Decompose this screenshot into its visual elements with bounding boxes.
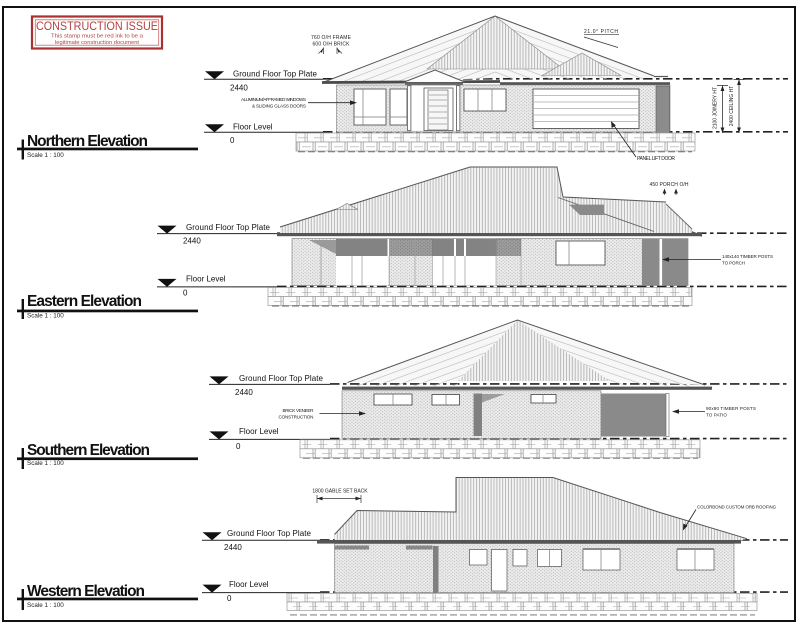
svg-text:CONSTRUCTION: CONSTRUCTION (279, 415, 314, 420)
svg-text:Scale 1 : 100: Scale 1 : 100 (27, 460, 64, 467)
svg-text:Scale 1 : 100: Scale 1 : 100 (27, 313, 64, 320)
svg-text:21.0° PITCH: 21.0° PITCH (584, 29, 618, 35)
svg-text:2440: 2440 (235, 388, 253, 397)
svg-text:Floor Level: Floor Level (229, 580, 269, 589)
svg-text:Floor Level: Floor Level (233, 123, 273, 132)
svg-text:140x140 TIMBER POSTS: 140x140 TIMBER POSTS (722, 254, 773, 259)
svg-text:legitimate construction docume: legitimate construction document (55, 40, 139, 46)
svg-text:Scale 1 : 100: Scale 1 : 100 (27, 602, 64, 609)
svg-text:0: 0 (236, 442, 241, 451)
svg-text:2440: 2440 (183, 237, 201, 246)
svg-text:PANEL LIFT DOOR: PANEL LIFT DOOR (637, 156, 675, 162)
svg-text:450 PORCH O/H: 450 PORCH O/H (650, 182, 689, 188)
svg-text:600 O/H BRICK: 600 O/H BRICK (313, 42, 351, 48)
svg-text:0: 0 (227, 594, 232, 603)
svg-text:2400 CEILING HT: 2400 CEILING HT (729, 86, 735, 127)
svg-text:Ground Floor Top Plate: Ground Floor Top Plate (233, 70, 318, 79)
svg-text:TO PATIO: TO PATIO (706, 413, 727, 418)
svg-text:Ground Floor Top Plate: Ground Floor Top Plate (186, 223, 271, 232)
svg-text:2440: 2440 (224, 543, 242, 552)
svg-text:ALUMINIUM/AFFRAMED WINDOWS: ALUMINIUM/AFFRAMED WINDOWS (241, 97, 306, 102)
svg-text:Western Elevation: Western Elevation (27, 583, 145, 600)
svg-text:Southern Elevation: Southern Elevation (27, 442, 150, 459)
svg-text:This stamp must be red ink to: This stamp must be red ink to be a (51, 33, 144, 39)
svg-text:Scale 1 : 100: Scale 1 : 100 (27, 152, 64, 159)
svg-text:BRICK VENEER: BRICK VENEER (283, 408, 315, 413)
svg-text:2100 JOINERY HT: 2100 JOINERY HT (713, 87, 719, 129)
svg-text:Eastern Elevation: Eastern Elevation (27, 293, 142, 310)
svg-text:CONSTRUCTION ISSUE: CONSTRUCTION ISSUE (36, 19, 158, 33)
svg-text:760 O/H FRAME: 760 O/H FRAME (311, 35, 352, 41)
svg-text:Ground Floor Top Plate: Ground Floor Top Plate (239, 374, 324, 383)
svg-text:COLORBOND CUSTOM ORB ROOFING: COLORBOND CUSTOM ORB ROOFING (697, 505, 777, 510)
svg-text:& SLIDING GLASS DOORS: & SLIDING GLASS DOORS (252, 104, 306, 109)
svg-text:90x90 TIMBER POSTS: 90x90 TIMBER POSTS (706, 406, 756, 411)
svg-text:Ground Floor Top Plate: Ground Floor Top Plate (227, 529, 312, 538)
svg-text:2440: 2440 (230, 84, 248, 93)
svg-text:1800 GABLE SET BACK: 1800 GABLE SET BACK (312, 489, 368, 495)
svg-text:0: 0 (230, 136, 235, 145)
svg-text:Floor Level: Floor Level (239, 427, 279, 436)
svg-text:Northern Elevation: Northern Elevation (27, 133, 148, 150)
svg-text:0: 0 (183, 289, 188, 298)
svg-text:TO PORCH: TO PORCH (722, 261, 745, 266)
svg-text:Floor Level: Floor Level (186, 275, 226, 284)
